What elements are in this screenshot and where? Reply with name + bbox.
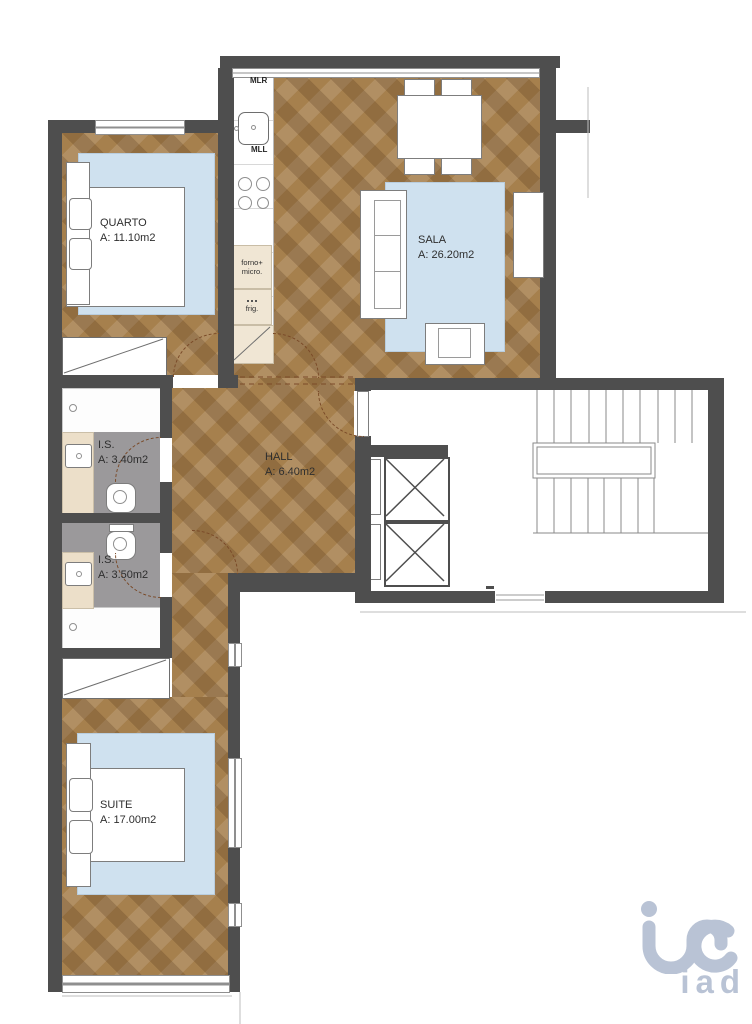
- is2-label: I.S. A: 3.50m2: [98, 553, 148, 583]
- is2-door-gap: [160, 553, 172, 597]
- is2-toilet-bowl: [113, 537, 127, 551]
- suite-headboard: [66, 743, 91, 887]
- is1-label: I.S. A: 3.40m2: [98, 438, 148, 468]
- is1-shower: [62, 388, 162, 434]
- sideboard: [513, 192, 544, 278]
- kitchen-quarto-wall: [218, 68, 234, 375]
- elevator-door-1: [370, 459, 381, 515]
- kitchen-sala-window-band: [232, 68, 540, 78]
- suite-pillow-1: [69, 778, 93, 812]
- suite-area: A: 17.00m2: [100, 813, 156, 828]
- quarto-area: A: 11.10m2: [100, 231, 155, 246]
- fridge-vent-icon: [247, 300, 257, 302]
- stair-bottom-wall-right: [545, 591, 724, 603]
- corridor-window-1: [228, 643, 242, 667]
- stair-top-wall: [355, 378, 724, 390]
- elevator-top-wall: [370, 445, 448, 457]
- suite-name: SUITE: [100, 798, 156, 813]
- dining-table: [397, 95, 482, 159]
- is2-shower: [62, 607, 162, 650]
- stair-right-wall: [708, 390, 724, 603]
- suite-window-right: [228, 758, 242, 848]
- oven-label-line2: micro.: [233, 267, 271, 276]
- quarto-headboard: [66, 162, 90, 305]
- kitchen-tall-closet: [232, 325, 274, 364]
- suite-wardrobe: [62, 658, 170, 699]
- kitchen-sink-drain: [234, 126, 239, 131]
- washer-label: MLR: [250, 76, 267, 85]
- stove-burner-1: [238, 177, 252, 191]
- is2-sink-drain: [76, 571, 82, 577]
- top-wall: [220, 56, 560, 68]
- is2-name: I.S.: [98, 553, 148, 568]
- fridge-label: frig.: [233, 304, 271, 313]
- elevator-shaft-2: [384, 522, 450, 587]
- quarto-pillow-2: [69, 238, 92, 270]
- quarto-window: [95, 120, 185, 135]
- sala-name: SALA: [418, 233, 474, 248]
- sala-label: SALA A: 26.20m2: [418, 233, 474, 263]
- oven-label-line1: forno+: [233, 258, 271, 267]
- is1-name: I.S.: [98, 438, 148, 453]
- is1-sink-drain: [76, 453, 82, 459]
- armchair-cushion: [438, 328, 471, 358]
- quarto-wardrobe: [62, 337, 167, 377]
- suite-label: SUITE A: 17.00m2: [100, 798, 156, 828]
- fridge-cell: frig.: [232, 289, 272, 325]
- iad-logo-text: iad: [628, 963, 746, 1001]
- elevator-shaft-1: [384, 457, 450, 522]
- is2-area: A: 3.50m2: [98, 568, 148, 583]
- right-wall-stub: [556, 120, 590, 133]
- elevator-door-2: [370, 524, 381, 580]
- hall-name: HALL: [265, 450, 315, 465]
- hall-label: HALL A: 6.40m2: [265, 450, 315, 480]
- hall-area: A: 6.40m2: [265, 465, 315, 480]
- staircase-icon: [533, 390, 708, 533]
- suite-pillow-2: [69, 820, 93, 854]
- hall-bottom-wall: [228, 573, 371, 592]
- is1-door-gap: [160, 438, 172, 482]
- bath-bottom-wall: [48, 648, 172, 658]
- quarto-name: QUARTO: [100, 216, 155, 231]
- is1-shower-drain: [69, 404, 77, 412]
- sala-area: A: 26.20m2: [418, 248, 474, 263]
- left-outer-wall: [48, 120, 62, 992]
- is1-toilet-bowl: [113, 490, 127, 504]
- corridor-window-2: [228, 903, 242, 927]
- suite-window-bottom: [62, 975, 230, 993]
- bath-divider-wall: [48, 513, 172, 523]
- stove-burner-2: [256, 177, 270, 191]
- logo-dot: [641, 901, 657, 917]
- sofa-cushions: [374, 200, 401, 309]
- dishwasher-label: MLL: [251, 145, 267, 154]
- corridor-floor: [172, 573, 228, 703]
- kitchen-sink-tap: [251, 125, 256, 130]
- quarto-label: QUARTO A: 11.10m2: [100, 216, 155, 246]
- floor-plan: MLR MLL forno+ micro. frig. QUARTO A: 11…: [0, 0, 752, 1024]
- is2-shower-drain: [69, 623, 77, 631]
- oven-microwave-cell: forno+ micro.: [232, 245, 272, 289]
- quarto-pillow-1: [69, 198, 92, 230]
- stair-entrance-gap: [495, 591, 545, 603]
- stove-burner-4: [257, 197, 269, 209]
- is1-area: A: 3.40m2: [98, 453, 148, 468]
- stair-bottom-wall-left: [355, 591, 513, 603]
- bath-right-wall: [160, 388, 172, 658]
- stove-burner-3: [238, 196, 252, 210]
